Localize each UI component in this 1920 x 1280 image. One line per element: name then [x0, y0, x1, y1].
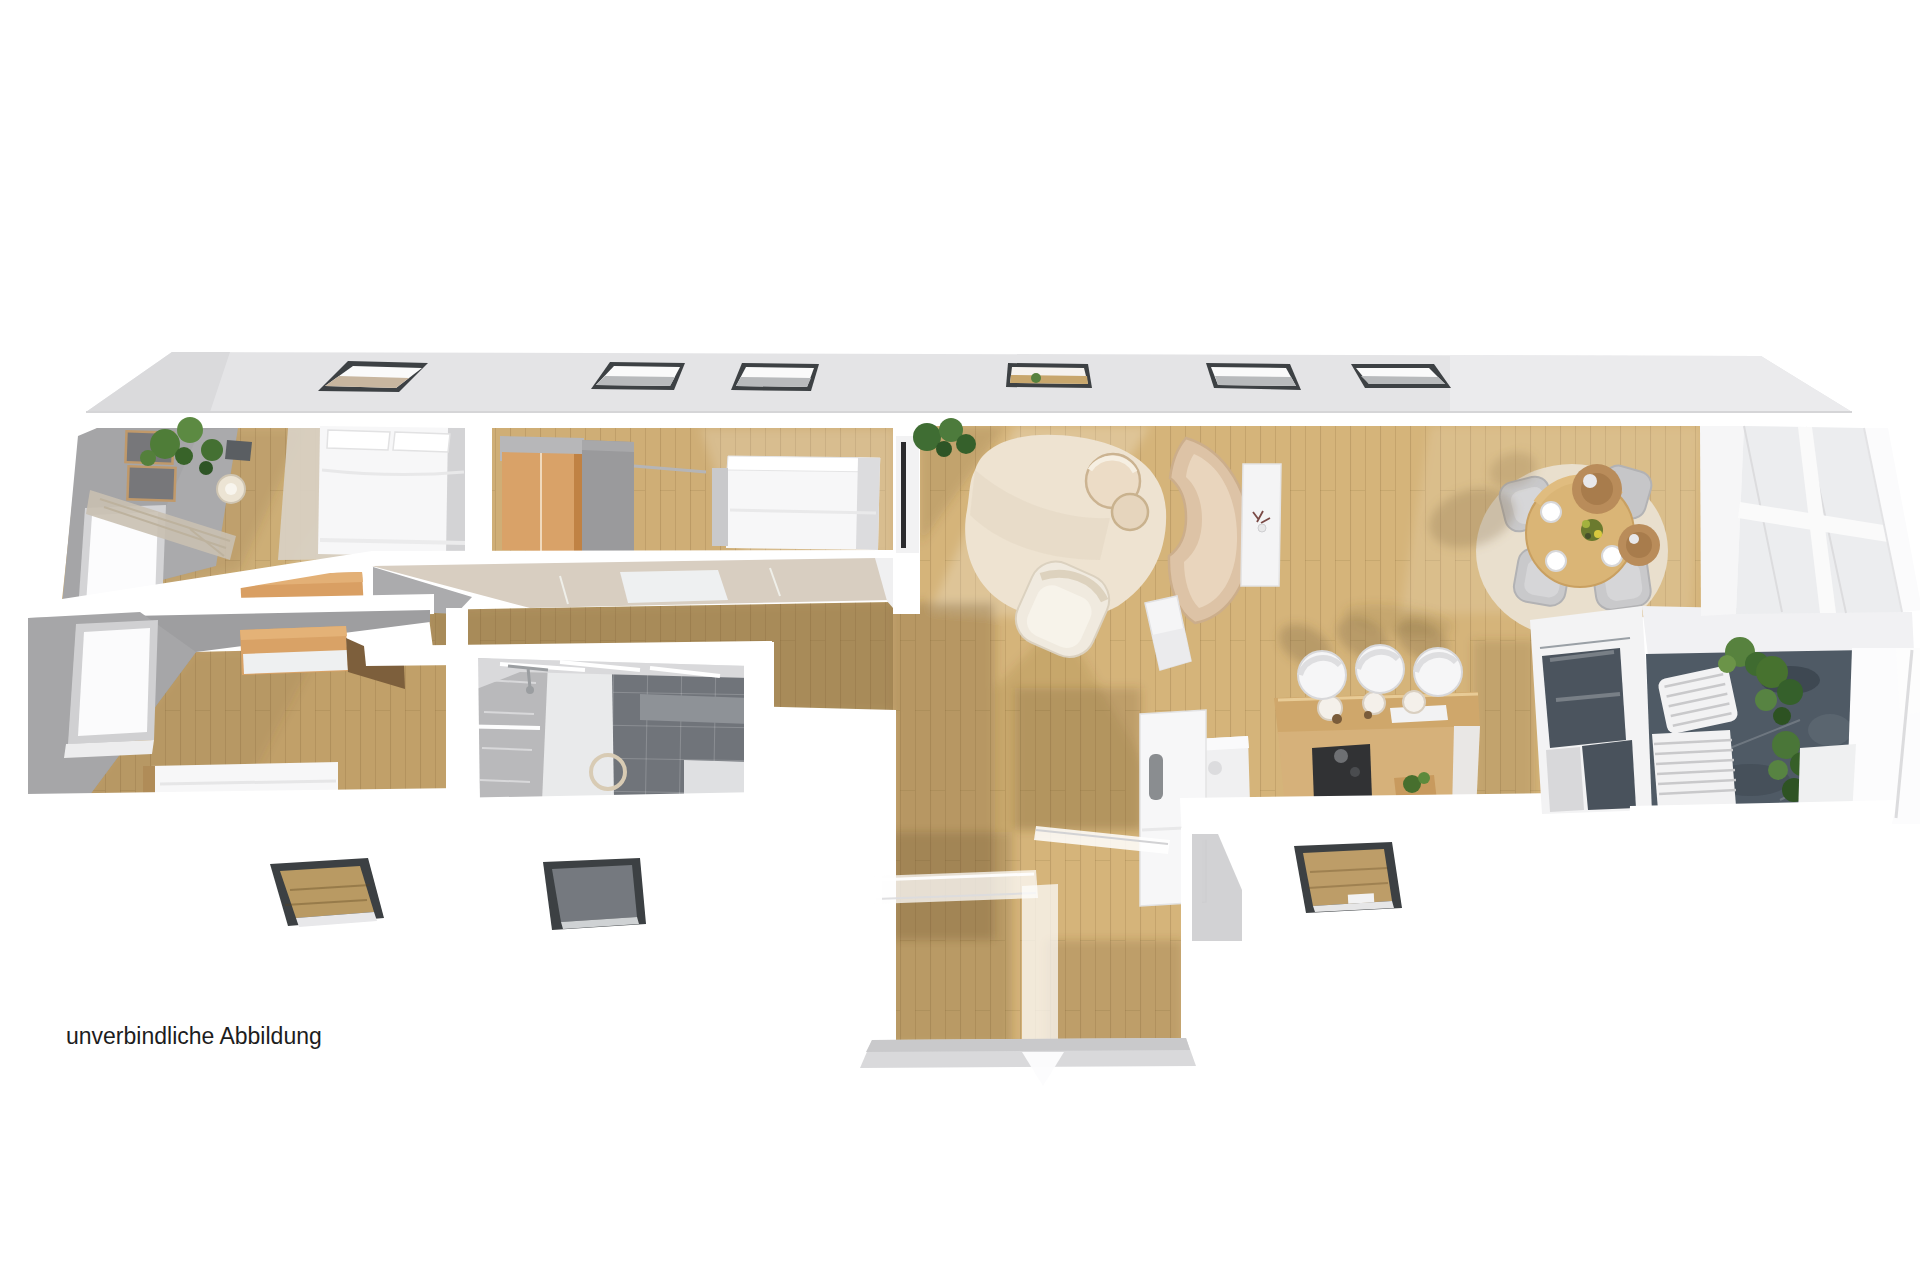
- svg-text:unverbindliche Abbildung: unverbindliche Abbildung: [66, 1023, 322, 1049]
